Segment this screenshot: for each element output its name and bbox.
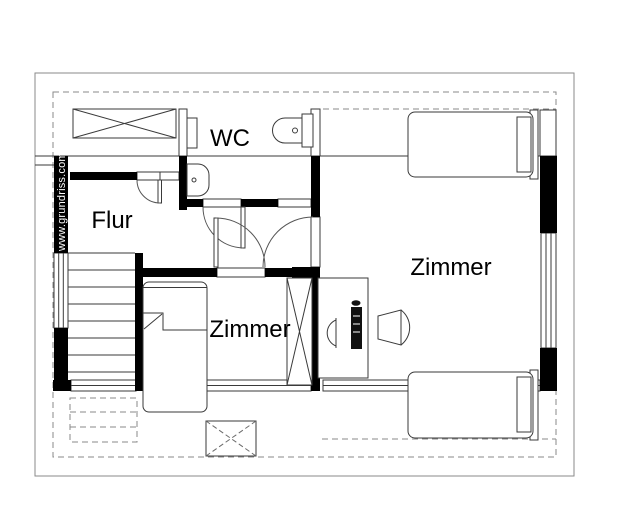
wardrobe-icon-bottom	[287, 278, 312, 385]
stairs-icon	[68, 253, 135, 372]
door-icon-flur	[137, 180, 162, 203]
room-label-zimmer-right: Zimmer	[410, 254, 491, 281]
floor-plan: WC Flur Zimmer Zimmer www.grundriss.com	[0, 0, 640, 522]
toilet-icon	[273, 114, 314, 147]
skylight-icon	[206, 421, 256, 456]
room-label-flur: Flur	[91, 207, 132, 234]
door-icon-zimmer-bottom	[214, 218, 265, 267]
chair-icon	[378, 310, 410, 345]
wall-corner-bottom-left	[53, 380, 71, 391]
wall-vestibule-south-right	[265, 268, 292, 277]
wardrobe-icon-top	[73, 109, 176, 138]
door-icon-zimmer-right	[263, 217, 313, 267]
window-icon-right	[541, 233, 556, 348]
wall-right-lower	[540, 348, 557, 391]
window-icon-left	[54, 253, 68, 328]
stairs-hidden-below	[70, 398, 137, 442]
watermark-text: www.grundriss.com	[56, 152, 68, 252]
window-icon-bottom-left	[71, 380, 136, 391]
wall-flur-east	[135, 253, 143, 391]
room-label-zimmer-bottom: Zimmer	[209, 316, 290, 343]
wall-wc-right	[311, 156, 320, 217]
bed-icon-bottom-right	[408, 370, 538, 440]
wall-vestibule-south-left	[143, 268, 217, 277]
duct-box	[187, 118, 197, 148]
doors	[137, 180, 313, 267]
door-icon-wc	[203, 207, 245, 248]
room-label-wc: WC	[210, 125, 250, 152]
wall-right-upper	[540, 156, 557, 233]
wall-flur-north	[70, 172, 137, 180]
sink-icon	[187, 164, 209, 196]
wall-wc-south-right	[241, 199, 278, 207]
bed-icon-bottom-room	[143, 282, 207, 412]
wall-wc-south-left	[179, 199, 203, 207]
floor-plan-page: WC Flur Zimmer Zimmer www.grundriss.com	[0, 0, 640, 522]
bed-icon-top-right	[408, 110, 538, 179]
